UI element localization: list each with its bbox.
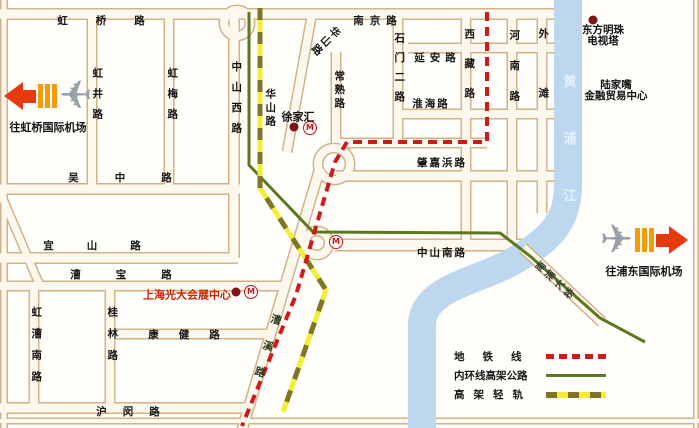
label-kangjian-road: 康健路 [148, 330, 240, 341]
legend: 地铁线 内环线高架公路 高架轻轨 [454, 347, 698, 404]
runway-stripes-icon [635, 228, 654, 252]
label-caoxi-road: 漕溪路 [248, 313, 282, 395]
poi-dot-xujiahui-dot [290, 123, 299, 132]
poi-dot-oriental-pearl-dot [589, 16, 598, 25]
label-huashan-road-lower: 华山路 [265, 88, 276, 129]
hongqiao-airport-marker: ✈ 往虹桥国际机场 [4, 76, 92, 135]
poi-label-oriental-pearl-tower: 东方明珠电视塔 [582, 25, 624, 47]
label-henan-road: 河南路 [509, 29, 520, 121]
metro-line-sample-icon [546, 354, 606, 359]
pudong-airport-icon: ✈ [600, 220, 689, 260]
label-huashan-road-upper: 华山路 [308, 24, 342, 58]
legend-rail-label: 高架轻轨 [454, 387, 546, 402]
label-changshu-road: 常熟路 [334, 70, 345, 111]
label-hongqiao-road: 虹桥路 [57, 16, 173, 27]
legend-item-metro: 地铁线 [454, 347, 698, 366]
legend-metro-label: 地铁线 [454, 349, 546, 364]
arrow-tail [23, 90, 36, 103]
airplane-icon: ✈ [59, 76, 93, 116]
ring-road-sample-icon [546, 374, 606, 377]
poi-label-lujiazui-center: 陆家嘴金融贸易中心 [585, 80, 648, 102]
poi-dot-everbright-dot [232, 288, 241, 297]
pudong-airport-marker: ✈ 往浦东国际机场 [594, 220, 694, 279]
label-waitan: 外滩 [538, 28, 549, 147]
light-rail-sample-icon [546, 392, 606, 398]
metro-station-icon-everbright-station: M [244, 285, 258, 299]
arrow-left-icon [4, 82, 23, 110]
metro-station-icon-xujiahui-station: M [303, 121, 317, 135]
airplane-icon: ✈ [600, 220, 634, 260]
pudong-airport-label: 往浦东国际机场 [606, 263, 683, 279]
legend-ring-label: 内环线高架公路 [454, 368, 546, 383]
legend-item-ring-road: 内环线高架公路 [454, 366, 698, 385]
arrow-right-icon [669, 226, 688, 254]
poi-label-everbright-center: 上海光大会展中心 [143, 290, 231, 301]
label-hongcao-south-road: 虹漕南路 [31, 307, 42, 393]
shanghai-transit-map: 虹桥路南京路延安路淮海路肇嘉浜路中山南路吴中路宜山路漕宝路康健路沪闵路虹井路虹梅… [0, 0, 699, 428]
label-hongjing-road: 虹井路 [92, 67, 103, 129]
metro-station-icon-south-station: M [329, 235, 343, 249]
label-hongmei-road: 虹梅路 [167, 67, 178, 129]
arrow-tail [656, 234, 669, 247]
label-nanjing-road: 南京路 [353, 16, 403, 27]
label-zhongshan-south-road: 中山南路 [417, 248, 467, 259]
label-yanan-road: 延安路 [414, 53, 461, 64]
label-guilin-road: 桂林路 [107, 306, 118, 371]
label-nanpu-bridge: 南浦大桥 [532, 261, 577, 304]
label-humin-road: 沪闵路 [96, 407, 176, 418]
runway-stripes-icon [38, 84, 57, 108]
label-xizang-road: 西藏路 [464, 28, 475, 117]
legend-item-light-rail: 高架轻轨 [454, 385, 698, 404]
label-shimen-er-road: 石门二路 [394, 33, 405, 111]
hongqiao-airport-label: 往虹桥国际机场 [10, 119, 87, 135]
label-zhaojiabang-road: 肇嘉浜路 [417, 158, 467, 169]
label-huangpu-river: 黄浦江 [562, 75, 575, 246]
label-huaihai-road: 淮海路 [412, 99, 450, 110]
label-yishan-road: 宜山路 [43, 241, 174, 252]
hongqiao-airport-icon: ✈ [4, 76, 93, 116]
label-caobao-road: 漕宝路 [70, 270, 207, 281]
label-zhongshan-west-road: 中山西路 [231, 61, 242, 143]
label-wuzhong-road: 吴中路 [68, 173, 208, 184]
